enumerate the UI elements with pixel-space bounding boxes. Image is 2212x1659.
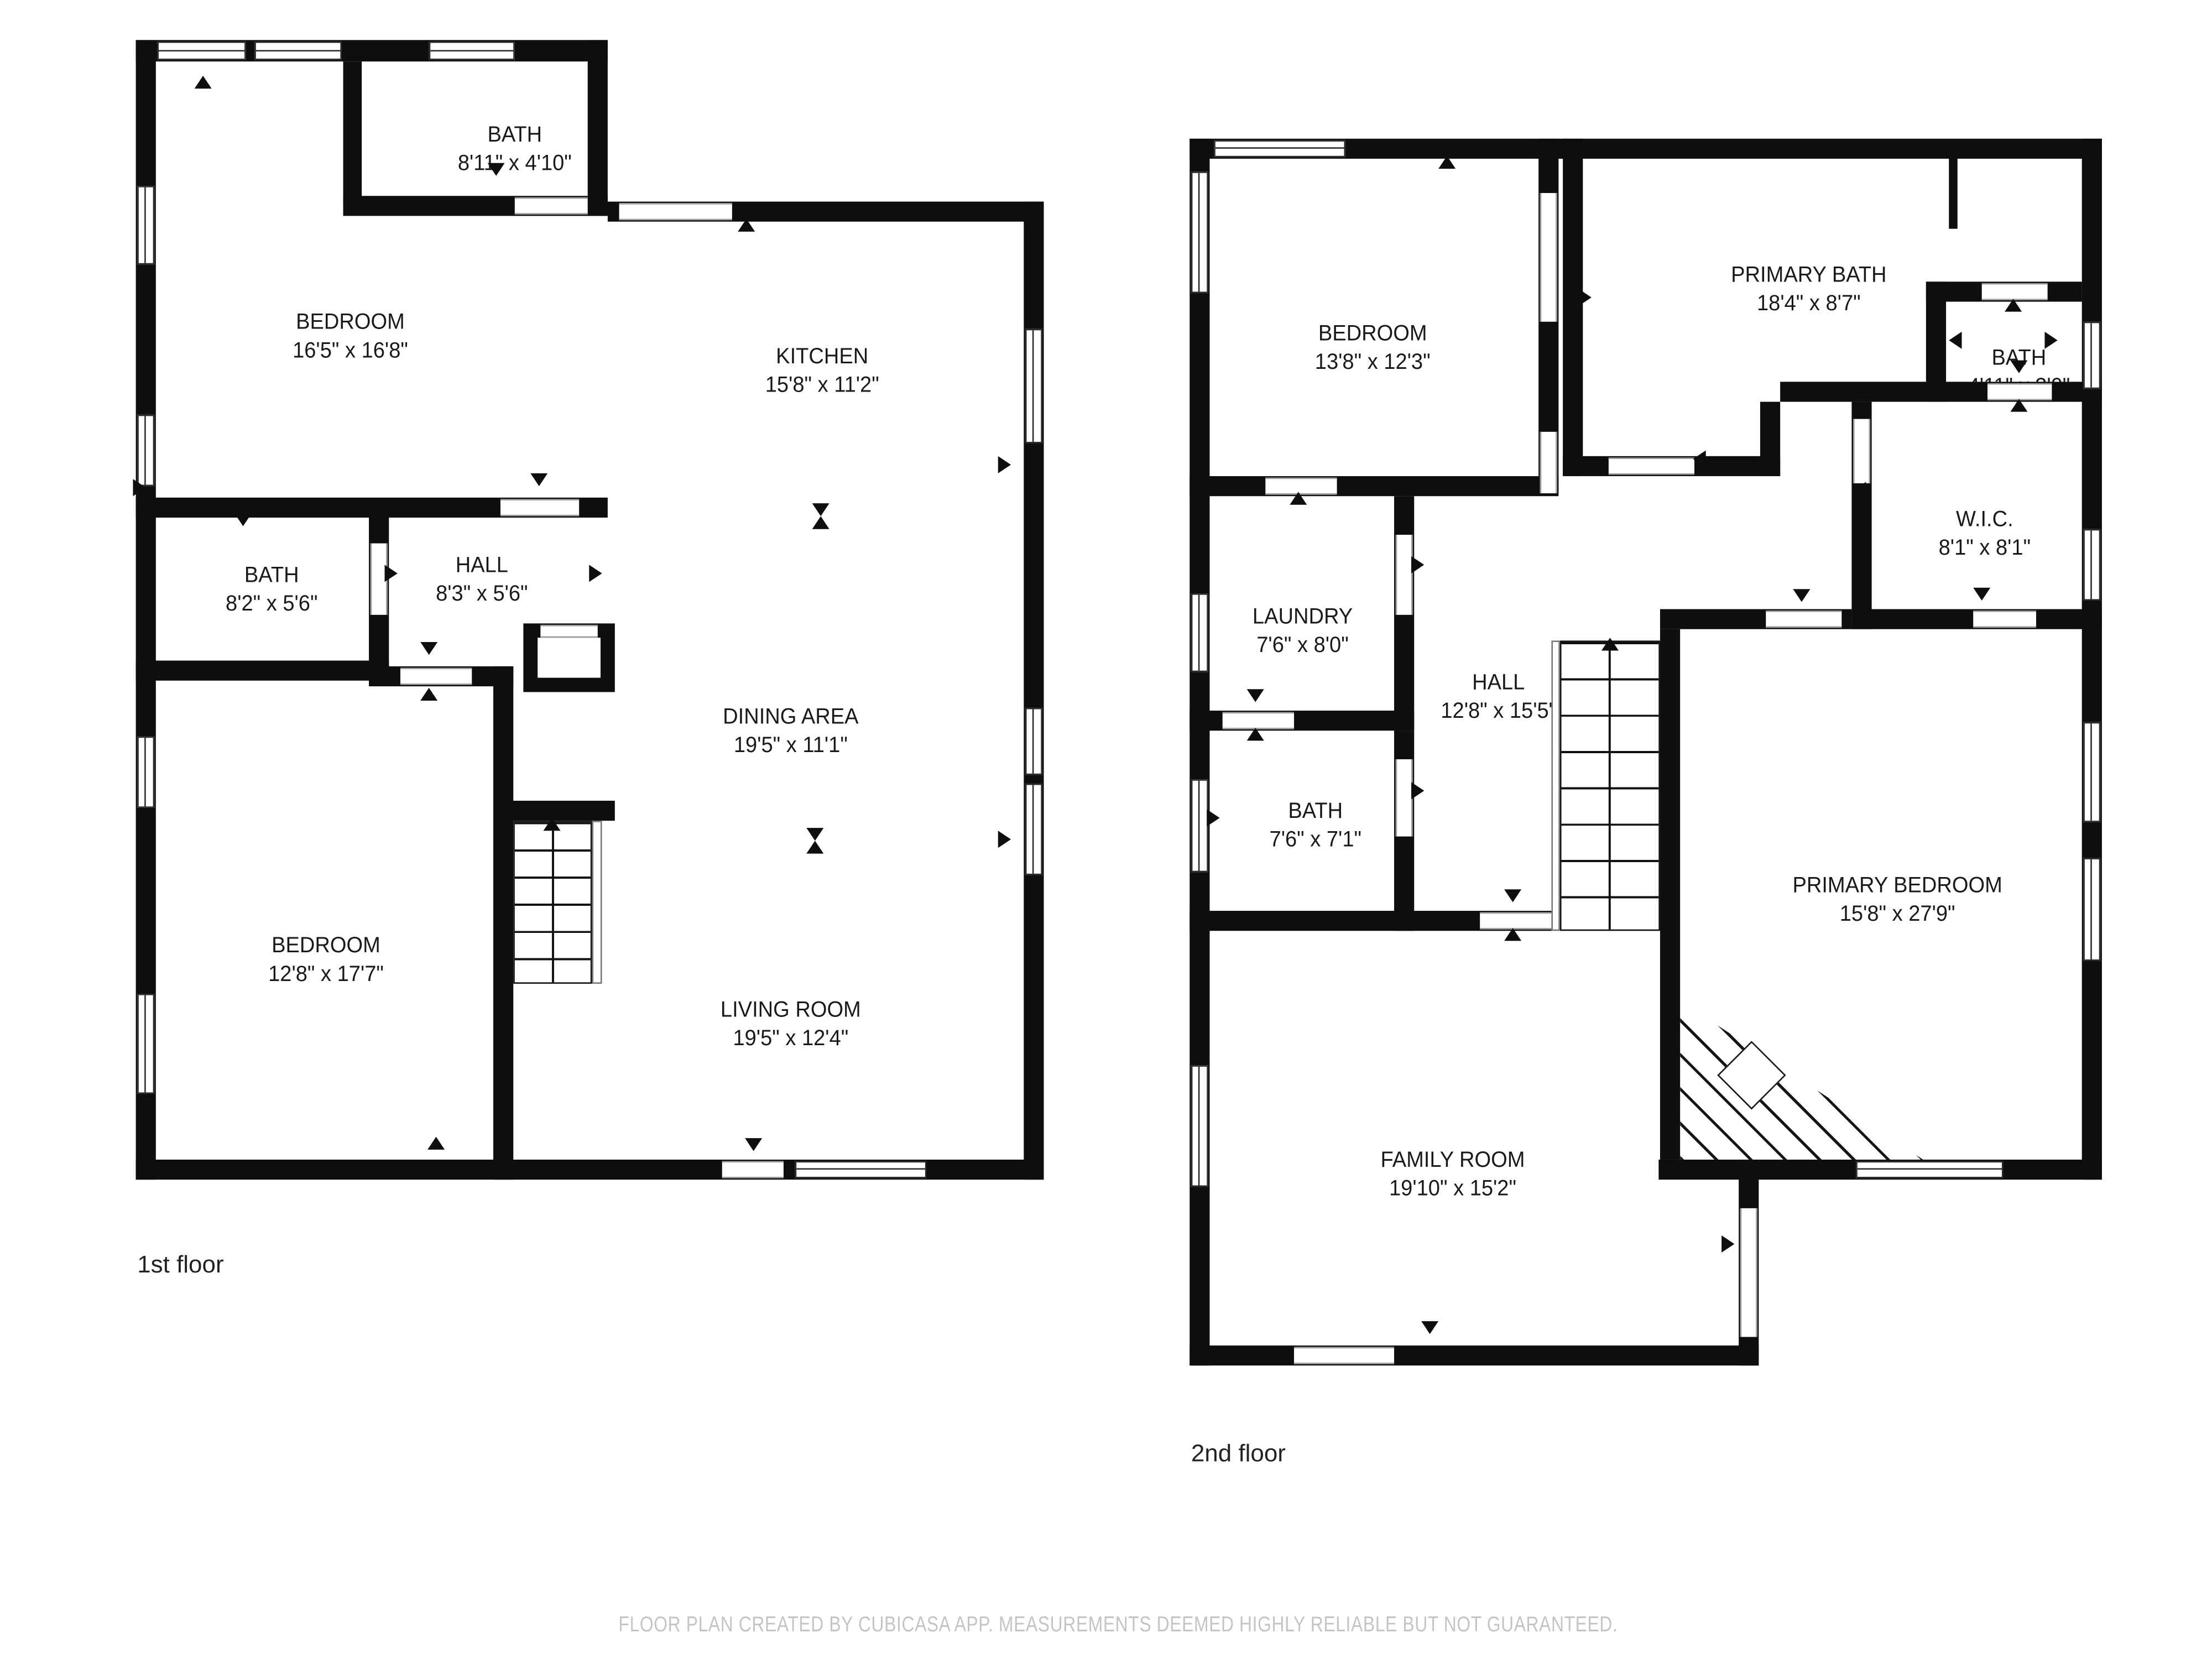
room-label-bath-2f: BATH 7'6" x 7'1" (1270, 798, 1361, 855)
stair-railing (1551, 640, 1560, 931)
room-label-family-room: FAMILY ROOM 19'10" x 15'2" (1381, 1147, 1525, 1204)
door-arrow-icon (1207, 809, 1219, 826)
wall-segment (1926, 281, 1946, 401)
wall-segment (1190, 1345, 1759, 1365)
window (2083, 722, 2100, 822)
door-arrow-icon (1290, 492, 1307, 504)
room-label-primary-bath: PRIMARY BATH 18'4" x 8'7" (1731, 262, 1886, 319)
door-opening (1396, 535, 1413, 615)
door-arrow-icon (1793, 589, 1810, 602)
room-label-laundry: LAUNDRY 7'6" x 8'0" (1253, 603, 1353, 660)
room-dims: 7'6" x 7'1" (1270, 827, 1361, 855)
room-dims: 13'8" x 12'3" (1315, 349, 1431, 378)
window (2083, 858, 2100, 961)
room-name: FAMILY ROOM (1381, 1147, 1525, 1176)
door-arrow-icon (2010, 361, 2027, 373)
stairs-up-arrow-icon (1601, 638, 1619, 650)
room-dims: 12'8" x 15'5" (1441, 698, 1556, 727)
room-name: BATH (1270, 798, 1361, 827)
disclaimer-text: FLOOR PLAN CREATED BY CUBICASA APP. MEAS… (619, 1613, 1618, 1637)
room-dims: 15'8" x 27'9" (1792, 901, 2002, 930)
room-name: BEDROOM (1315, 320, 1431, 349)
door-arrow-icon (1579, 289, 1592, 306)
second-floor-plan: BEDROOM 13'8" x 12'3" PRIMARY BATH 18'4"… (0, 0, 2212, 1658)
door-arrow-icon (1853, 482, 1866, 499)
wall-segment (1563, 139, 1583, 476)
door-arrow-icon (1693, 450, 1705, 467)
door-opening (1982, 283, 2048, 300)
door-arrow-icon (2044, 332, 2057, 349)
door-opening (1480, 912, 1551, 930)
door-opening (1766, 611, 1841, 628)
room-name: PRIMARY BEDROOM (1792, 872, 2002, 901)
door-opening (1973, 611, 2036, 628)
winder-stairs-hatch (1680, 1001, 1923, 1160)
room-name: PRIMARY BATH (1731, 262, 1886, 290)
room-label-bedroom: BEDROOM 13'8" x 12'3" (1315, 320, 1431, 377)
door-arrow-icon (1504, 928, 1521, 941)
window (1191, 1065, 1208, 1187)
door-opening (1223, 712, 1294, 729)
door-arrow-icon (1247, 728, 1264, 740)
wall-segment (1760, 402, 1780, 476)
door-arrow-icon (2005, 299, 2022, 311)
window (1856, 1161, 2003, 1178)
room-label-primary-bedroom: PRIMARY BEDROOM 15'8" x 27'9" (1792, 872, 2002, 929)
door-opening (1540, 193, 1557, 322)
door-opening (1294, 1347, 1394, 1364)
window (1191, 593, 1208, 672)
room-dims: 8'1" x 8'1" (1939, 535, 2031, 564)
door-arrow-icon (1973, 588, 1990, 601)
window (1191, 779, 1208, 872)
second-floor-caption: 2nd floor (1191, 1440, 1286, 1469)
room-label-wic: W.I.C. 8'1" x 8'1" (1939, 506, 2031, 563)
door-opening (1609, 457, 1694, 474)
wall-segment (1190, 476, 1558, 496)
staircase (1560, 640, 1660, 931)
door-opening (1396, 759, 1413, 837)
window (2083, 322, 2100, 389)
door-arrow-icon (1247, 689, 1264, 702)
room-name: W.I.C. (1939, 506, 2031, 535)
floor-plan-page: BATH 8'11" x 4'10" BEDROOM 16'5" x 16'8"… (0, 0, 2212, 1658)
door-arrow-icon (1504, 889, 1521, 902)
room-dims: 19'10" x 15'2" (1381, 1175, 1525, 1204)
door-arrow-icon (1411, 556, 1424, 573)
door-arrow-icon (1411, 782, 1424, 799)
door-opening (1540, 432, 1557, 493)
room-name: LAUNDRY (1253, 603, 1353, 632)
door-opening (1740, 1208, 1757, 1337)
wall-segment (1660, 629, 1680, 1160)
room-dims: 7'6" x 8'0" (1253, 632, 1353, 661)
wall-segment (1949, 159, 1958, 229)
room-name: HALL (1441, 669, 1556, 698)
door-arrow-icon (1438, 156, 1455, 169)
door-opening (1987, 383, 2052, 400)
room-label-hall-2f: HALL 12'8" x 15'5" (1441, 669, 1556, 726)
door-arrow-icon (1421, 1321, 1438, 1334)
window (2083, 529, 2100, 601)
door-arrow-icon (1949, 332, 1961, 349)
window (1191, 171, 1208, 293)
room-dims: 18'4" x 8'7" (1731, 290, 1886, 319)
door-arrow-icon (2010, 399, 2027, 411)
wall-segment (2082, 139, 2102, 1180)
door-opening (1853, 419, 1870, 483)
door-arrow-icon (1721, 1235, 1734, 1253)
window (1214, 140, 1345, 157)
